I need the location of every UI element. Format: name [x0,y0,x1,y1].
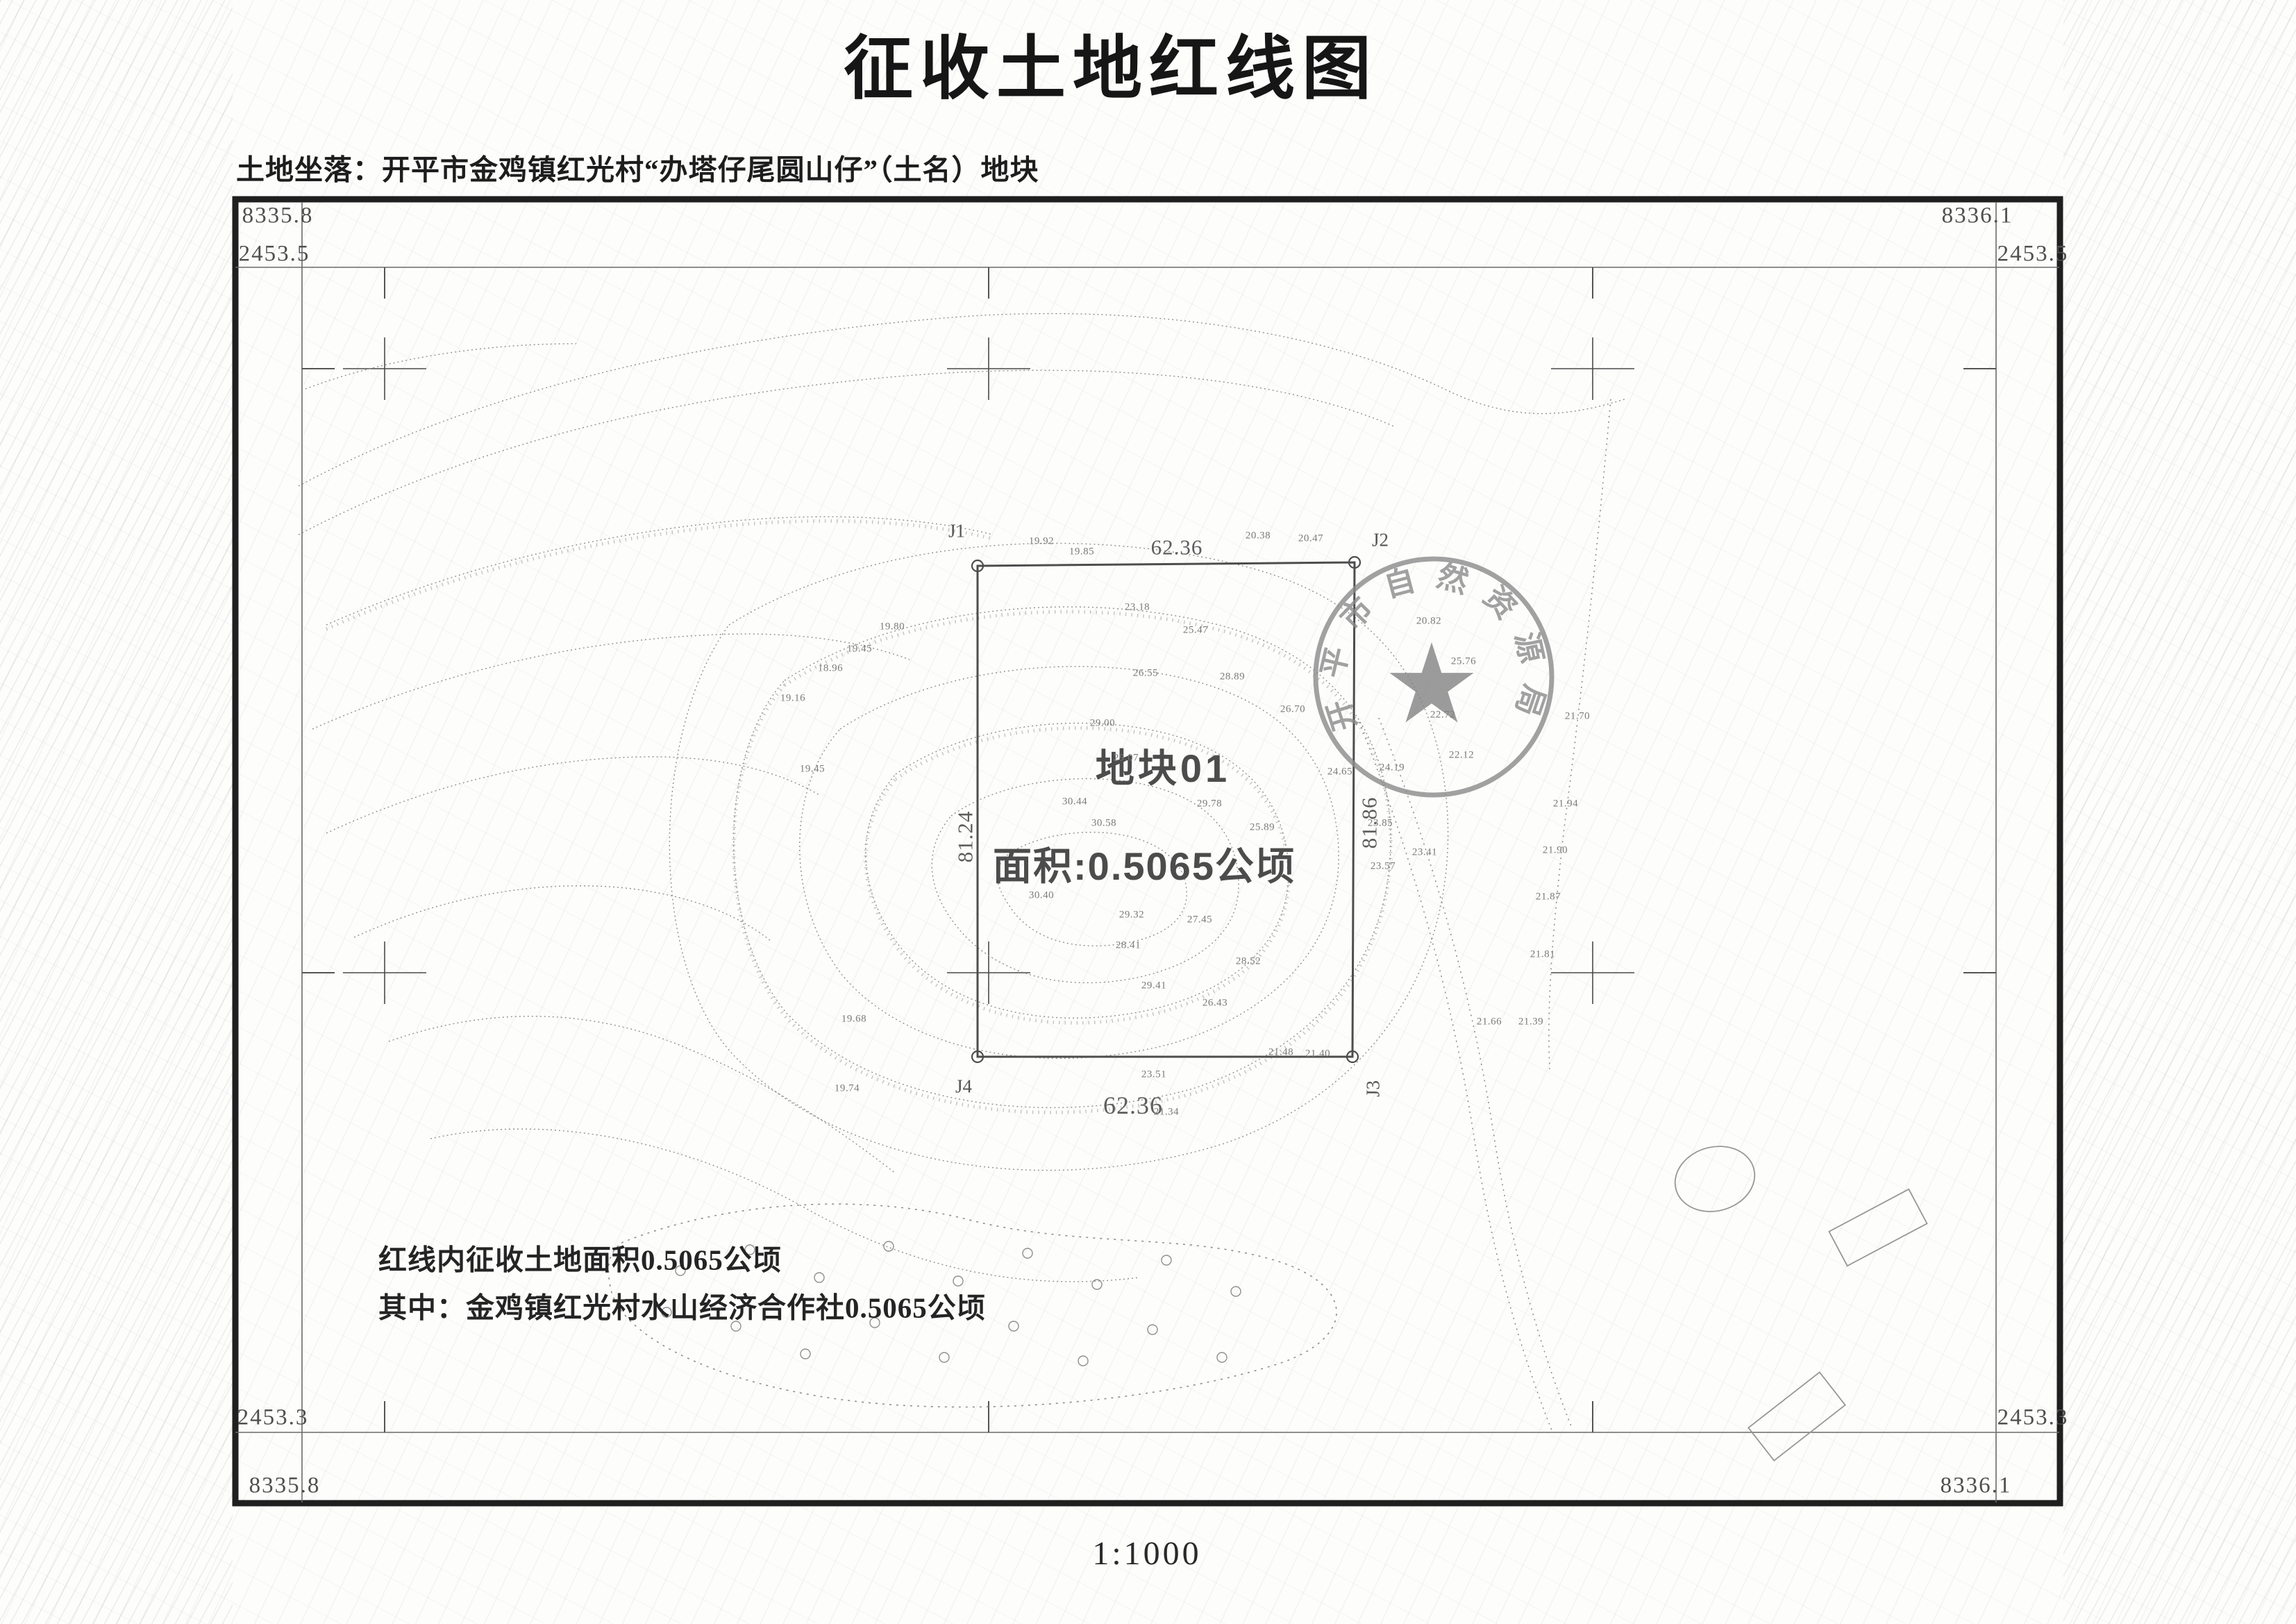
building-outline [1748,1372,1845,1460]
coord-bottom-right-easting: 2453.3 [1997,1407,2069,1430]
coord-top-right-northing: 8336.1 [1942,205,2013,228]
slope-hachures [326,521,1391,1112]
parcel-name: 地块01 [1096,749,1230,788]
pond-and-buildings [1668,1138,1927,1461]
point-label-j2: J2 [1372,531,1389,550]
coord-bottom-left-northing: 8335.8 [249,1475,321,1498]
point-label-j1: J1 [948,522,965,541]
parcel-boundary [972,557,1360,1062]
coord-top-left-northing: 8335.8 [242,205,314,228]
note-line-1: 红线内征收土地面积0.5065公顷 [378,1246,782,1275]
location-line: 土地坐落：开平市金鸡镇红光村“办塔仔尾圆山仔”（土名）地块 [236,156,1039,185]
point-label-j3: J3 [1364,1080,1383,1097]
pond-outline [1668,1138,1762,1221]
point-label-j4: J4 [955,1078,972,1096]
edge-length-left: 81.24 [955,811,976,863]
map-canvas: 开平市自然资源局 [0,0,2296,1624]
footpath-lines [1359,399,1611,1430]
page-title: 征收土地红线图 [844,35,1378,104]
contour-lines [299,314,1625,1282]
boundary-point-markers [972,557,1360,1062]
note-line-2: 其中：金鸡镇红光村水山经济合作社0.5065公顷 [378,1294,986,1323]
coord-bottom-right-northing: 8336.1 [1941,1475,2012,1498]
scale-label: 1:1000 [1092,1537,1201,1571]
coord-top-left-easting: 2453.5 [239,243,310,266]
coord-top-right-easting: 2453.5 [1997,243,2069,266]
seal-star-icon [1389,642,1473,723]
coord-bottom-left-easting: 2453.3 [237,1407,309,1430]
edge-length-right: 81.86 [1359,797,1380,849]
seal-text: 开平市自然资源局 [1316,559,1552,737]
edge-length-bottom: 62.36 [1103,1093,1163,1118]
official-seal: 开平市自然资源局 [1316,559,1552,795]
building-outline [1829,1189,1927,1266]
edge-length-top: 62.36 [1151,537,1203,558]
parcel-area: 面积:0.5065公顷 [993,847,1296,886]
